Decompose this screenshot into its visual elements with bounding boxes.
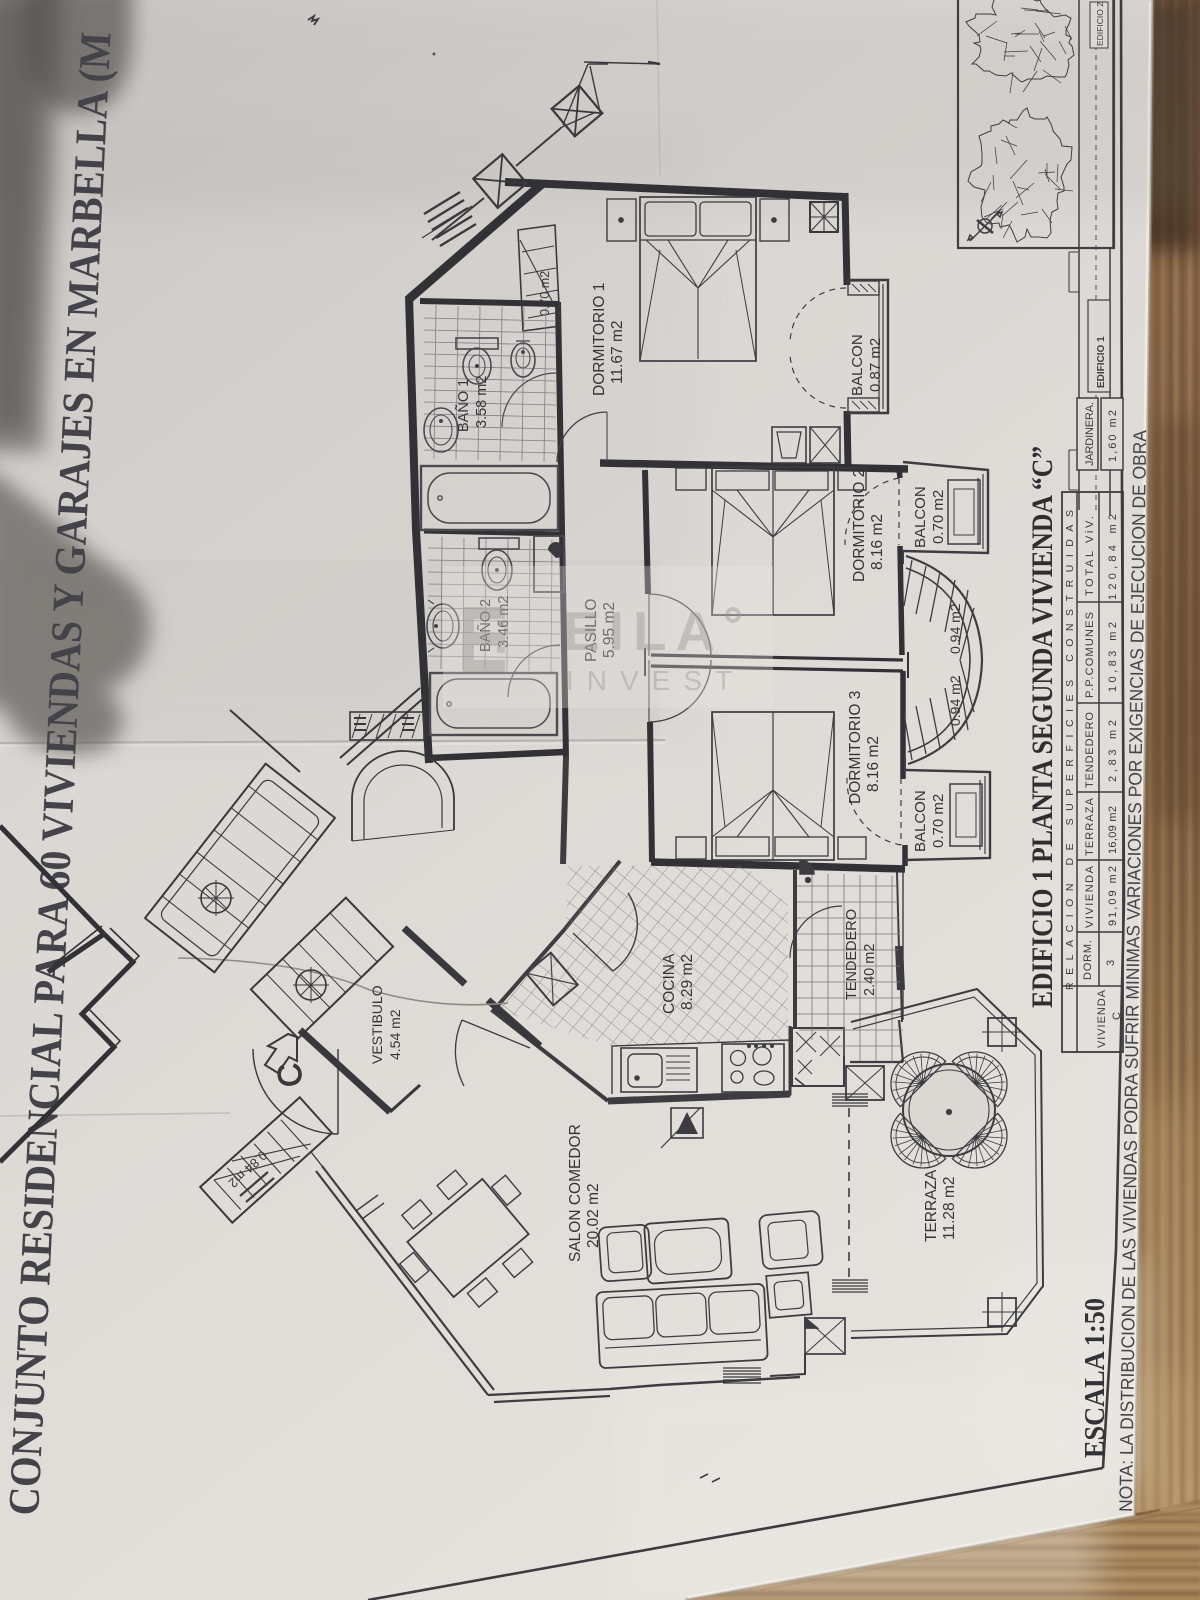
svg-text:8.29 m2: 8.29 m2	[679, 954, 696, 1010]
svg-text:0.94 m2: 0.94 m2	[947, 675, 963, 726]
svg-text:0.70 m2: 0.70 m2	[930, 794, 947, 848]
svg-text:BALCON: BALCON	[912, 790, 929, 852]
svg-text:EDIFICIO 1 PLANTA SEGUNDA VIVI: EDIFICIO 1 PLANTA SEGUNDA VIVIENDA “C”	[1026, 446, 1059, 1008]
svg-text:JARDINERA.: JARDINERA.	[1084, 402, 1096, 466]
svg-text:8.16 m2: 8.16 m2	[869, 514, 886, 570]
svg-text:VESTIBULO: VESTIBULO	[369, 985, 385, 1064]
svg-text:4.54 m2: 4.54 m2	[387, 1009, 403, 1060]
svg-text:TERRAZA: TERRAZA	[923, 1169, 940, 1242]
svg-text:DORMITORIO 3: DORMITORIO 3	[847, 691, 864, 804]
svg-text:11.28 m2: 11.28 m2	[941, 1177, 958, 1240]
svg-text:BALCON: BALCON	[912, 486, 929, 548]
svg-text:120,84 m2: 120,84 m2	[1107, 514, 1119, 600]
svg-text:TENDEDERO: TENDEDERO	[1084, 712, 1096, 788]
svg-text:BALCON: BALCON	[849, 334, 866, 396]
svg-text:0.94 m2: 0.94 m2	[947, 603, 963, 654]
svg-text:C: C	[270, 1062, 309, 1089]
svg-text:10,83 m2: 10,83 m2	[1107, 622, 1119, 692]
svg-text:INVEST: INVEST	[566, 665, 745, 696]
svg-text:RELACION DE SUPERFICIES CON: RELACION DE SUPERFICIES CONSTRUIDAS	[1064, 510, 1076, 990]
svg-text:8.16 m2: 8.16 m2	[865, 736, 882, 792]
svg-text:2.40 m2: 2.40 m2	[862, 944, 878, 996]
svg-text:C: C	[1111, 1012, 1123, 1020]
svg-text:EDIFICIO 2: EDIFICIO 2	[1095, 2, 1105, 46]
svg-text:DORMITORIO 2: DORMITORIO 2	[851, 469, 868, 582]
svg-text:ESCALA 1:50: ESCALA 1:50	[1079, 1298, 1111, 1458]
svg-text:BAÑO 1: BAÑO 1	[455, 379, 472, 432]
svg-text:SALON COMEDOR: SALON COMEDOR	[567, 1124, 584, 1262]
svg-text:20.02 m2: 20.02 m2	[585, 1183, 602, 1248]
svg-text:0.70 m2: 0.70 m2	[538, 271, 552, 316]
svg-text:11.67 m2: 11.67 m2	[609, 321, 626, 384]
svg-text:0.70 m2: 0.70 m2	[930, 490, 947, 544]
svg-text:VIVIENDA: VIVIENDA	[1096, 989, 1108, 1048]
svg-text:3: 3	[1105, 960, 1117, 966]
svg-text:TOTAL ViV.: TOTAL ViV.	[1084, 516, 1096, 596]
svg-text:DORM.: DORM.	[1082, 940, 1094, 980]
svg-text:TENDEDERO: TENDEDERO	[844, 909, 860, 1000]
svg-text:EILA: EILA	[563, 600, 724, 662]
svg-text:TERRAZA: TERRAZA	[1084, 797, 1096, 856]
svg-text:EDIFICIO 1: EDIFICIO 1	[1096, 336, 1107, 388]
svg-text:3.58 m2: 3.58 m2	[474, 376, 490, 428]
svg-text:16,09 m2: 16,09 m2	[1107, 806, 1119, 854]
svg-text:0.87 m2: 0.87 m2	[867, 338, 884, 392]
svg-text:DORMITORIO 1: DORMITORIO 1	[591, 283, 608, 396]
svg-text:COCINA: COCINA	[661, 953, 678, 1014]
svg-text:P.P.COMUNES: P.P.COMUNES	[1084, 612, 1096, 698]
svg-text:91,09 m2: 91,09 m2	[1107, 866, 1119, 926]
